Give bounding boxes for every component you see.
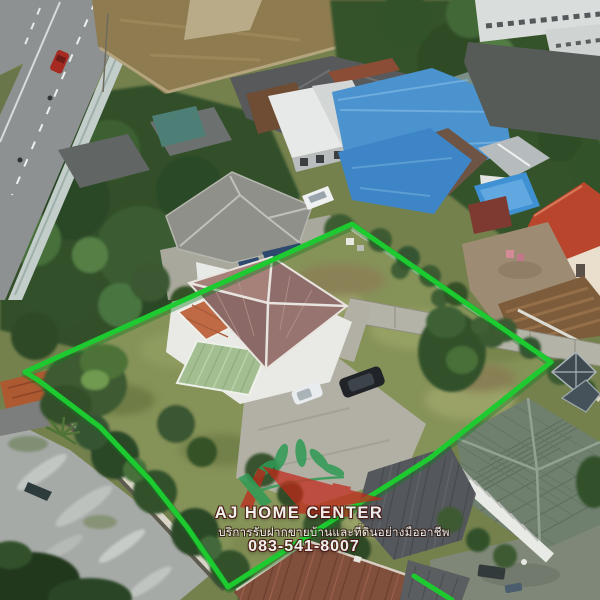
spirit-house [506,250,514,258]
aerial-photo: AJ HOME CENTER บริการรับฝากขายบ้านและที่… [0,0,600,600]
aerial-photo-canvas [0,0,600,600]
spirit-house-small [346,238,354,245]
motorbike [18,158,23,163]
motorbike [48,96,53,101]
